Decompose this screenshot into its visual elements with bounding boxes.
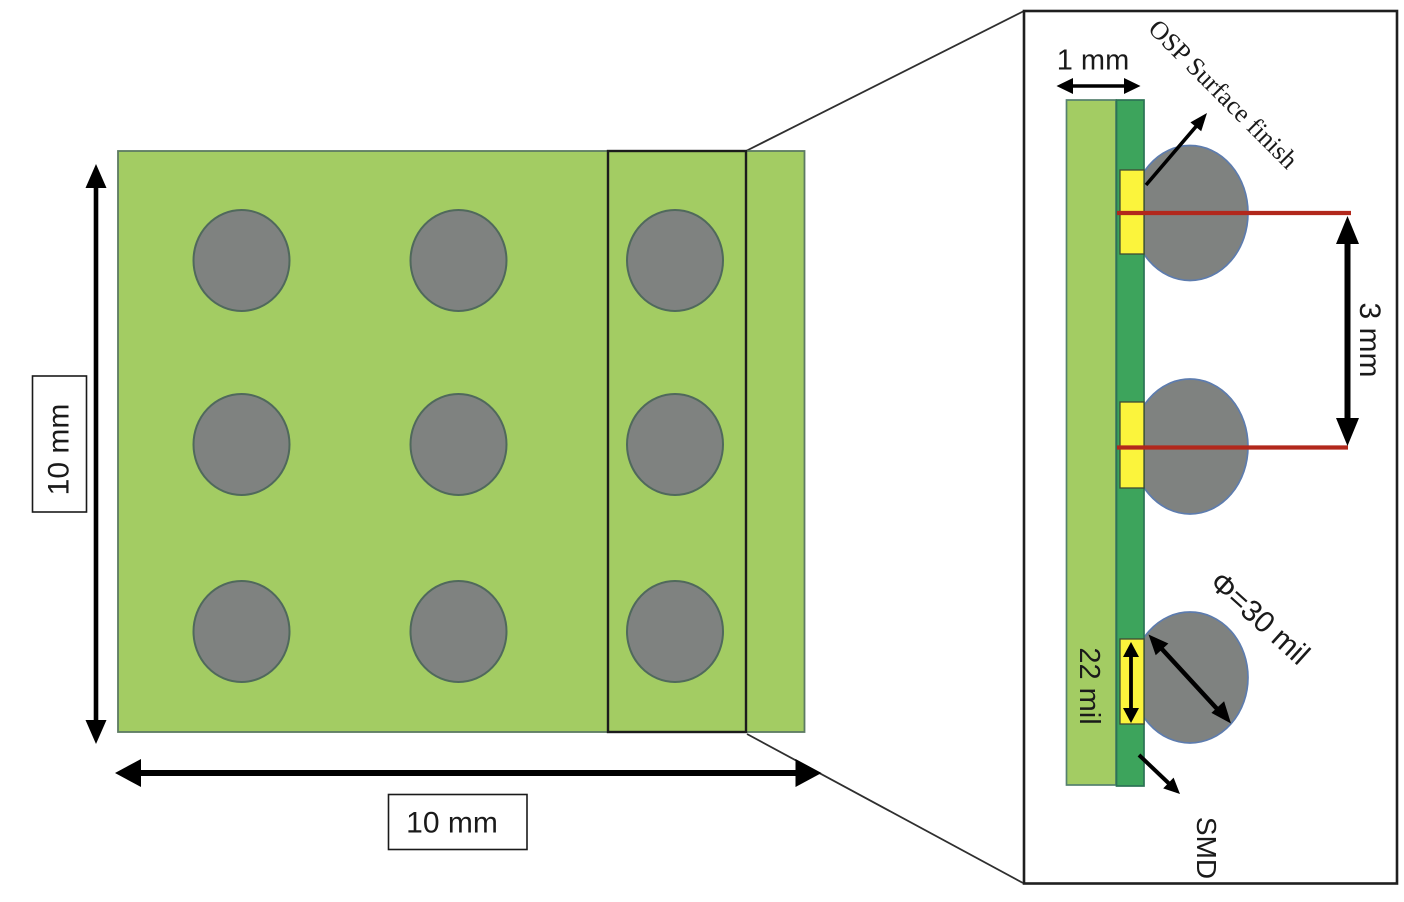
svg-text:22 mil: 22 mil [1073, 647, 1105, 724]
svg-text:1 mm: 1 mm [1057, 45, 1130, 77]
svg-text:SMD: SMD [1191, 817, 1222, 879]
svg-text:3 mm: 3 mm [1353, 303, 1386, 378]
svg-text:10 mm: 10 mm [43, 404, 76, 496]
svg-text:10 mm: 10 mm [406, 807, 498, 840]
